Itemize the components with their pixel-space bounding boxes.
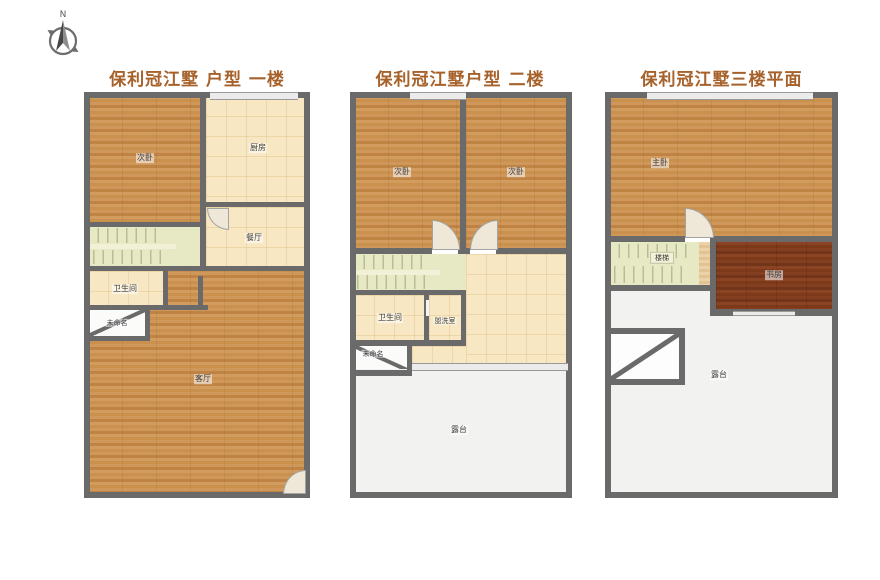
window: [210, 92, 298, 100]
floor3-title: 保利冠江墅三楼平面: [605, 65, 838, 87]
wall: [605, 285, 715, 291]
floorplan-sheet: N 保利冠江墅 户型 一楼 保利冠江墅户型 二楼 保利冠江墅三楼平面: [0, 0, 880, 580]
room-label-unnamed: 未命名: [362, 350, 385, 358]
room-label-unnamed: 未命名: [106, 319, 129, 327]
window: [733, 311, 795, 316]
room-label-stairs: 楼梯: [650, 252, 674, 264]
wall: [710, 237, 716, 316]
sliding-door: [426, 300, 429, 316]
compass-north-label: N: [60, 10, 67, 20]
room-label-kitchen: 厨房: [249, 143, 267, 153]
floor3-plan: 主卧 楼梯 书房 露台: [605, 92, 838, 498]
window: [412, 363, 568, 371]
floor2-title: 保利冠江墅户型 二楼: [348, 65, 572, 87]
window: [647, 92, 813, 100]
wall: [145, 310, 150, 336]
outer-wall: [84, 92, 310, 498]
wall: [496, 248, 568, 254]
room-label-bedroom-left: 次卧: [393, 167, 411, 177]
room-label-bedroom-right: 次卧: [507, 167, 525, 177]
wall: [460, 96, 466, 248]
wall: [609, 236, 685, 242]
room-label-bathroom: 卫生间: [377, 313, 403, 323]
room-label-bedroom: 次卧: [136, 153, 154, 163]
wall: [354, 290, 466, 295]
stair-void: [605, 328, 685, 385]
wall: [354, 370, 412, 376]
compass-icon: N: [36, 6, 90, 64]
wall: [712, 236, 834, 242]
outer-wall: [605, 92, 838, 498]
wall: [88, 222, 200, 227]
wall: [198, 276, 203, 305]
room-label-washroom: 盥洗室: [434, 317, 457, 325]
room-label-terrace: 露台: [710, 370, 728, 380]
floor1-title: 保利冠江墅 户型 一楼: [84, 65, 310, 87]
floor1-plan: 次卧 厨房 餐厅 卫生间 未命名 客厅: [84, 92, 310, 498]
wall: [88, 336, 150, 341]
room-label-study: 书房: [765, 270, 783, 280]
wall: [461, 295, 466, 340]
room-label-living: 客厅: [194, 374, 212, 384]
wall: [206, 202, 306, 207]
room-label-dining: 餐厅: [245, 233, 263, 243]
window: [410, 92, 466, 100]
wall: [88, 266, 306, 271]
room-label-terrace: 露台: [450, 425, 468, 435]
room-label-master-bedroom: 主卧: [651, 158, 669, 168]
wall: [354, 248, 432, 254]
wall: [163, 271, 168, 305]
room-label-bathroom: 卫生间: [112, 284, 138, 294]
floor2-plan: 次卧 次卧 卫生间 盥洗室 未命名 露台: [350, 92, 572, 498]
wall: [200, 96, 206, 266]
